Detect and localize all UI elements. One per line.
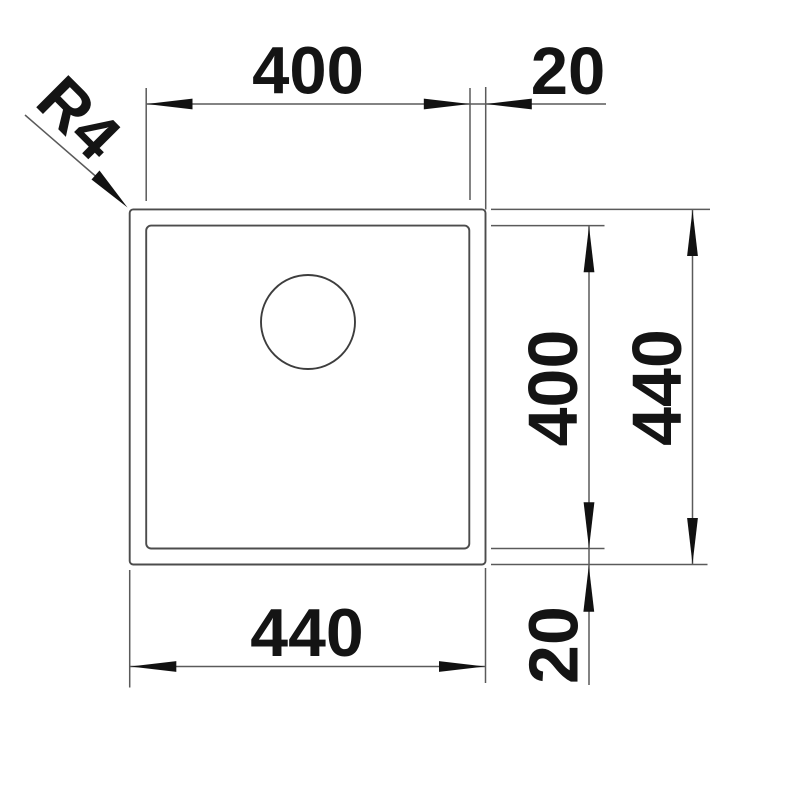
svg-text:20: 20: [515, 606, 593, 684]
svg-text:440: 440: [250, 595, 363, 671]
svg-text:440: 440: [618, 329, 696, 446]
svg-text:20: 20: [531, 34, 606, 109]
svg-text:R4: R4: [23, 62, 135, 174]
svg-text:400: 400: [514, 330, 592, 447]
svg-text:400: 400: [252, 34, 364, 109]
